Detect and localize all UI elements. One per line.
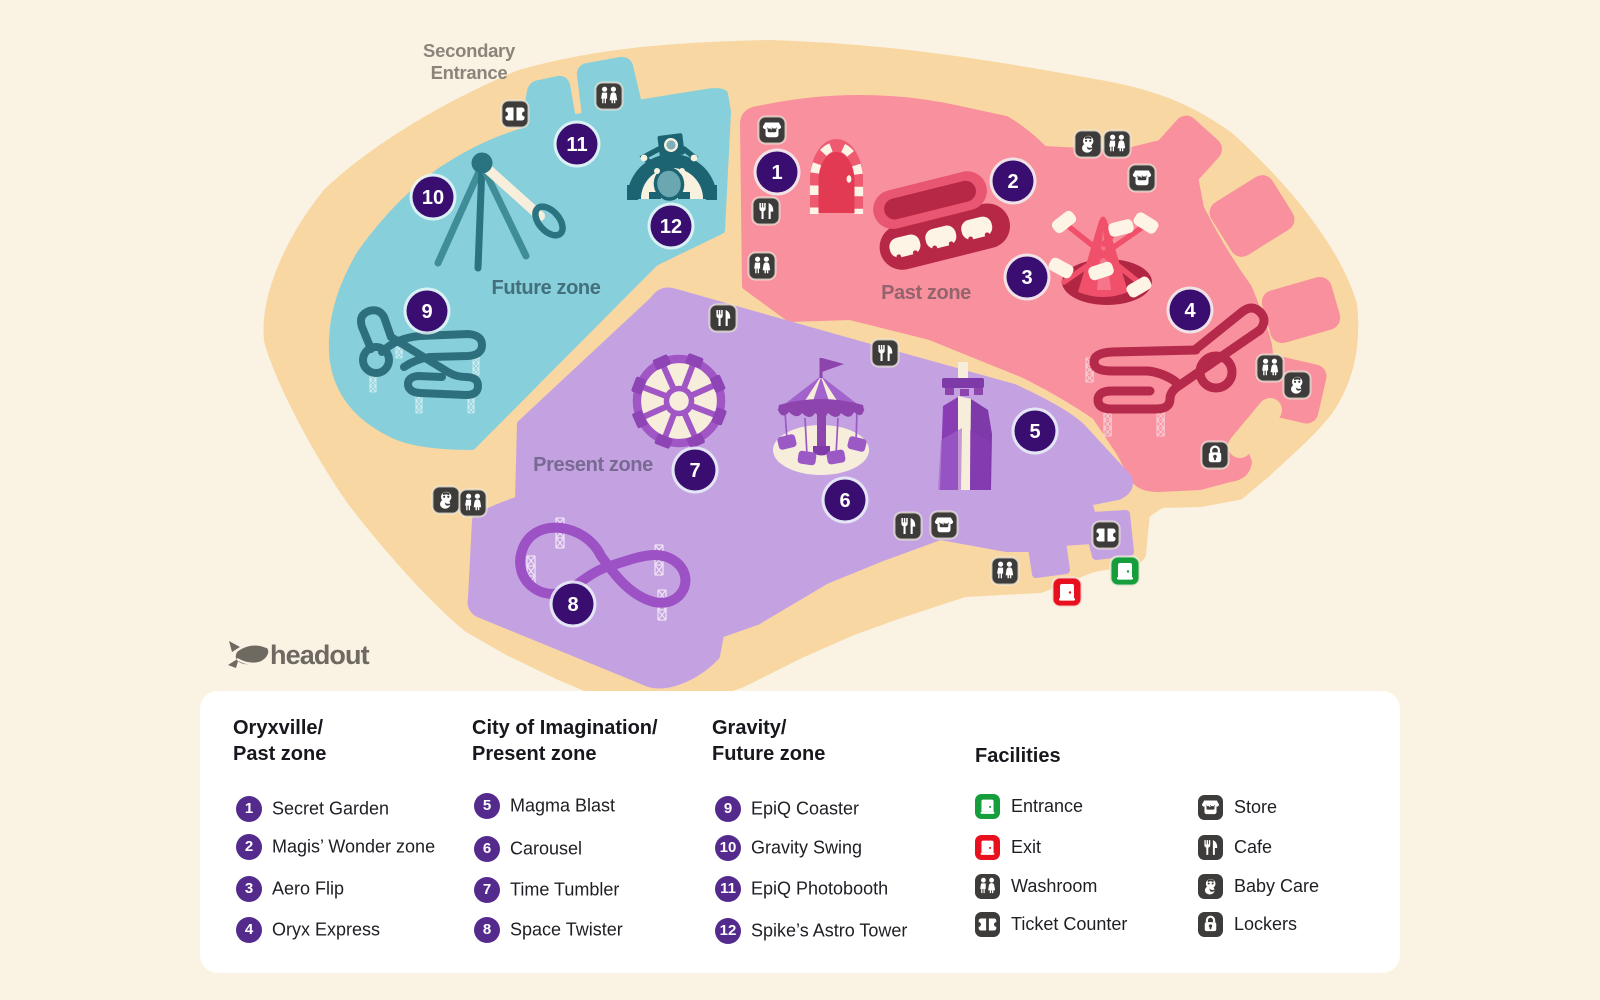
svg-text:4: 4 bbox=[1184, 300, 1196, 322]
svg-text:headout: headout bbox=[270, 640, 370, 670]
svg-text:9: 9 bbox=[421, 301, 432, 323]
svg-text:6: 6 bbox=[839, 490, 850, 512]
svg-text:Entrance: Entrance bbox=[431, 62, 508, 83]
svg-text:2: 2 bbox=[1007, 171, 1018, 193]
svg-text:5: 5 bbox=[1029, 421, 1040, 443]
svg-text:8: 8 bbox=[567, 594, 578, 616]
svg-text:Secondary: Secondary bbox=[423, 40, 516, 61]
svg-text:Present zone: Present zone bbox=[533, 454, 653, 476]
svg-text:12: 12 bbox=[660, 216, 682, 238]
svg-text:Future zone: Future zone bbox=[492, 277, 601, 299]
svg-text:7: 7 bbox=[689, 460, 700, 482]
svg-text:11: 11 bbox=[566, 134, 587, 156]
svg-text:10: 10 bbox=[422, 187, 444, 209]
svg-text:1: 1 bbox=[771, 162, 782, 184]
svg-text:Past zone: Past zone bbox=[881, 282, 971, 304]
svg-text:3: 3 bbox=[1021, 267, 1032, 289]
